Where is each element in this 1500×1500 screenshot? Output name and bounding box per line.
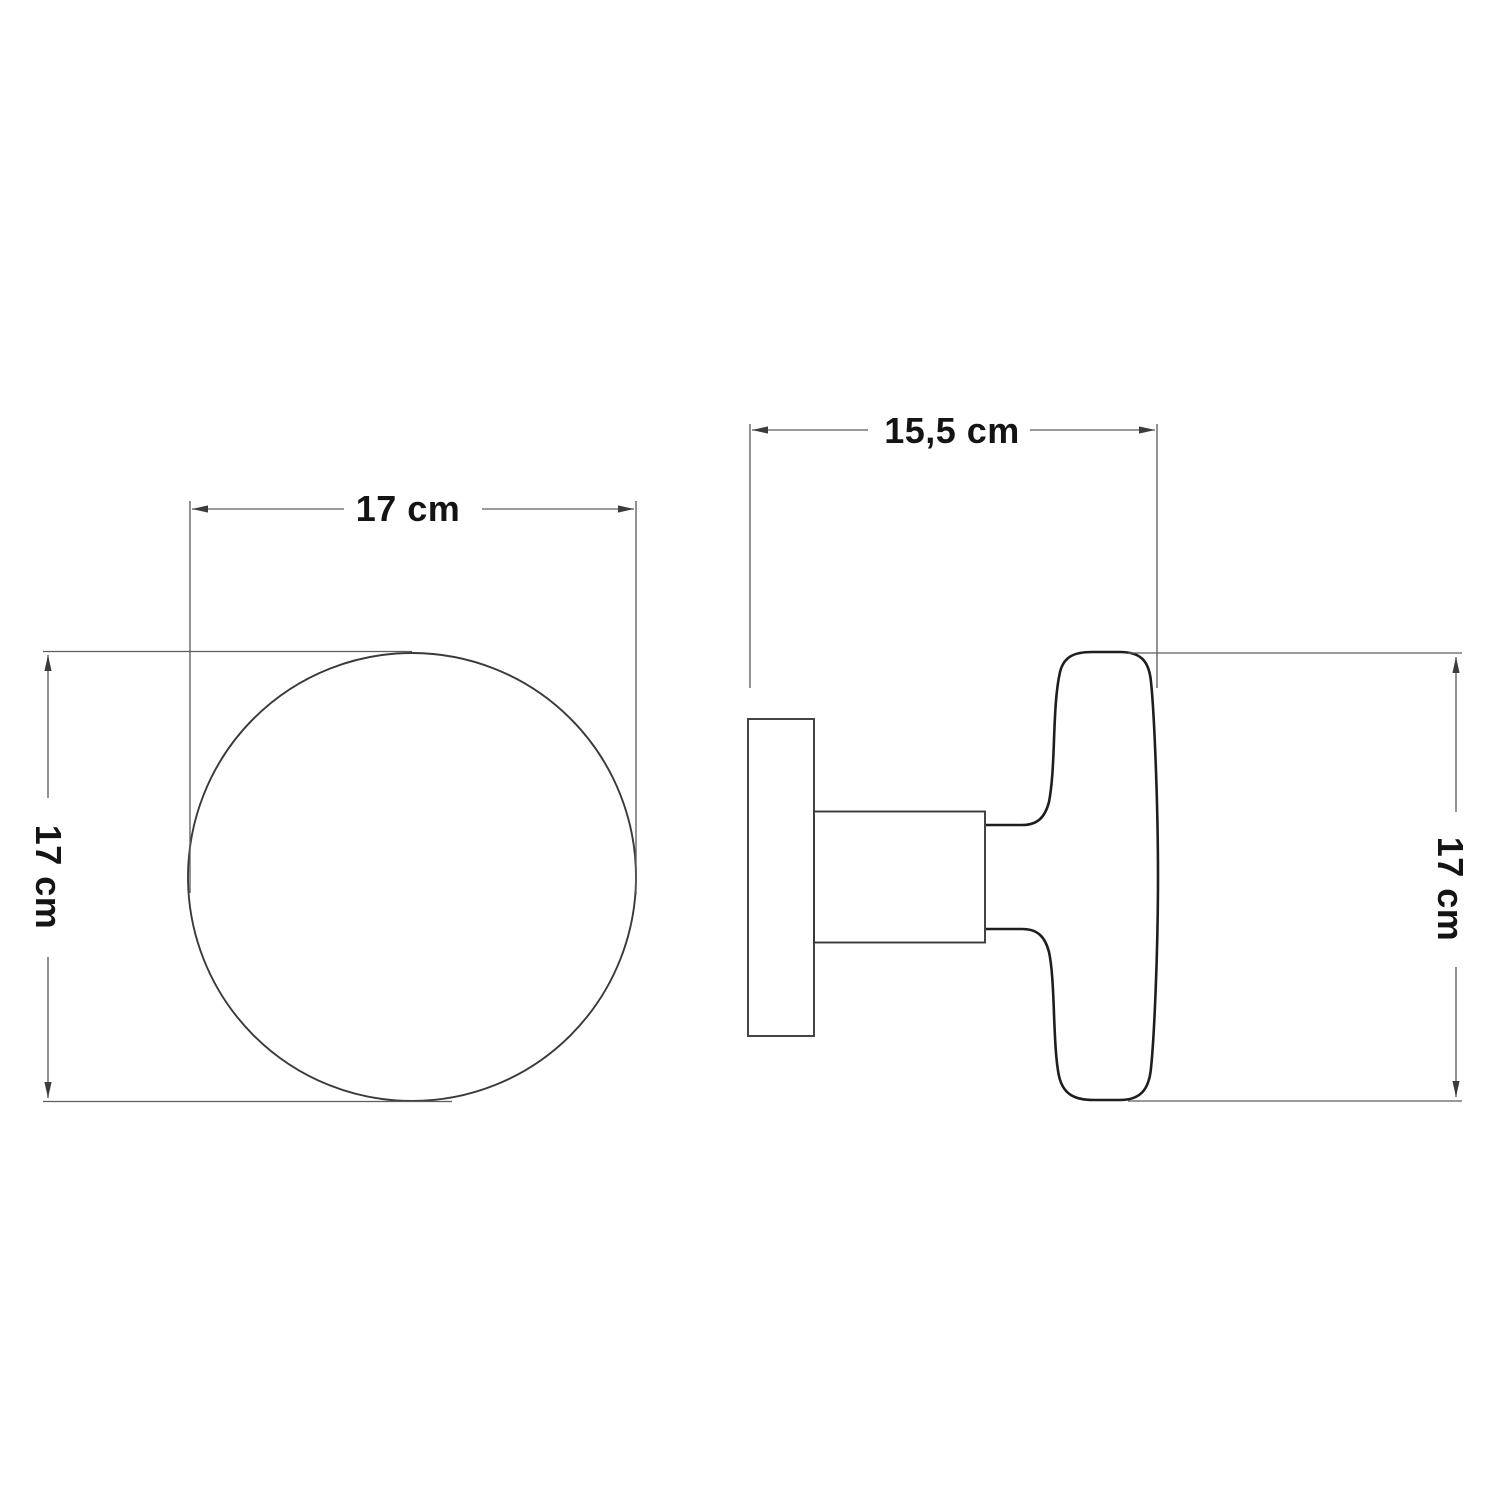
- side-height-label: 17 cm: [1430, 837, 1471, 942]
- side-height-dimension: 17 cm: [1128, 653, 1471, 1101]
- front-width-label: 17 cm: [356, 488, 461, 529]
- knob-profile-outline: [986, 652, 1158, 1100]
- stem-outline: [814, 812, 985, 943]
- wall-plate-outline: [748, 719, 814, 1036]
- side-view: 15,5 cm 17 cm: [748, 410, 1471, 1101]
- front-view: 17 cm 17 cm: [28, 488, 636, 1102]
- front-height-label: 17 cm: [28, 825, 69, 930]
- side-depth-dimension: 15,5 cm: [750, 410, 1157, 688]
- dimension-drawing-svg: 17 cm 17 cm 15,5 cm: [0, 0, 1500, 1500]
- front-width-dimension: 17 cm: [190, 488, 636, 895]
- side-depth-label: 15,5 cm: [884, 410, 1020, 451]
- knob-front-outline: [188, 653, 636, 1101]
- technical-drawing-canvas: 17 cm 17 cm 15,5 cm: [0, 0, 1500, 1500]
- front-height-dimension: 17 cm: [28, 652, 452, 1102]
